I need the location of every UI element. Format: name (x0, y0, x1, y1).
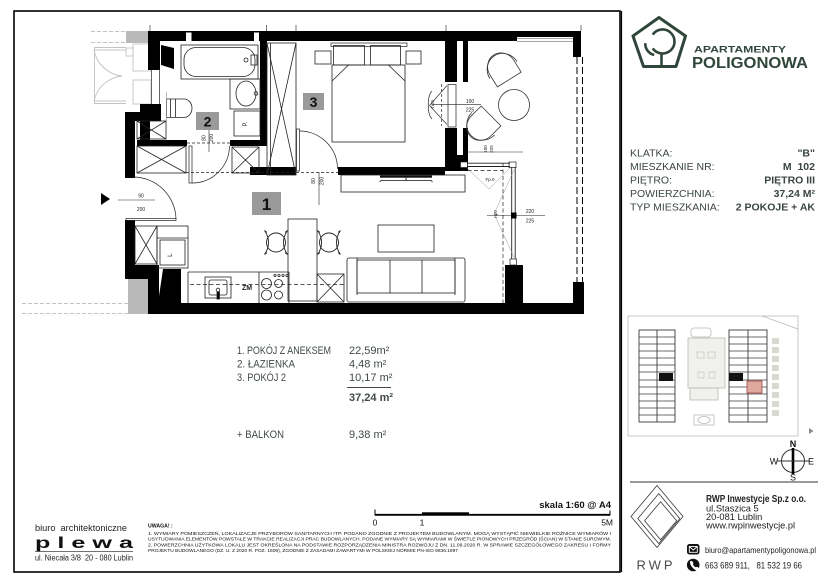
svg-text:2. ŁAZIENKA: 2. ŁAZIENKA (237, 359, 296, 371)
svg-text:5M: 5M (601, 518, 613, 528)
svg-text:10,17 m²: 10,17 m² (349, 372, 393, 384)
svg-text:225: 225 (489, 145, 494, 153)
svg-text:www.rwpinwestycje.pl: www.rwpinwestycje.pl (705, 521, 795, 531)
svg-text:PIĘTRO III: PIĘTRO III (764, 175, 815, 187)
svg-text:1. POKÓJ Z ANEKSEM: 1. POKÓJ Z ANEKSEM (237, 344, 331, 357)
svg-text:ul. Niecała 3/8 20 - 080 Lubl: ul. Niecała 3/8 20 - 080 Lublin (35, 554, 133, 563)
svg-text:biuro@apartamentypoligonowa.pl: biuro@apartamentypoligonowa.pl (705, 545, 816, 555)
svg-text:PIĘTRO:: PIĘTRO: (630, 175, 672, 187)
svg-text:2: 2 (204, 114, 212, 130)
svg-text:37,24 M²: 37,24 M² (774, 188, 816, 200)
svg-text:POLIGONOWA: POLIGONOWA (692, 55, 808, 72)
svg-text:9,38 m²: 9,38 m² (349, 429, 387, 441)
svg-text:PROJEKTU BUDOWLANEGO (DZ. U. Z: PROJEKTU BUDOWLANEGO (DZ. U. Z 2020 R. P… (148, 548, 458, 553)
svg-text:225: 225 (526, 219, 535, 225)
svg-text:M 102: M 102 (783, 161, 815, 173)
svg-text:APARTAMENTY: APARTAMENTY (694, 45, 787, 56)
svg-text:+ BALKON: + BALKON (237, 429, 284, 441)
svg-text:p l e w a: p l e w a (35, 535, 133, 552)
svg-text:1: 1 (262, 195, 271, 214)
svg-text:200: 200 (320, 177, 326, 186)
svg-text:np0: np0 (493, 210, 498, 218)
svg-text:Fp.0: Fp.0 (485, 177, 495, 182)
svg-text:RWP: RWP (636, 558, 675, 573)
svg-text:663 689 911, 81 532 19 66: 663 689 911, 81 532 19 66 (705, 561, 802, 571)
svg-text:200: 200 (137, 207, 146, 213)
svg-text:2. POWIERZCHNIA UŻYTKOWA LOKAL: 2. POWIERZCHNIA UŻYTKOWA LOKALU JEST OKR… (148, 540, 612, 547)
svg-text:UWAGA! :: UWAGA! : (148, 524, 173, 530)
svg-text:225: 225 (466, 108, 475, 114)
svg-text:S: S (790, 473, 796, 483)
svg-text:80: 80 (202, 135, 208, 141)
svg-text:"B": "B" (797, 148, 815, 160)
svg-text:100: 100 (466, 99, 475, 105)
svg-text:biuro architektoniczne: biuro architektoniczne (35, 523, 127, 534)
svg-text:P.: P. (243, 121, 249, 126)
svg-text:KLATKA:: KLATKA: (630, 148, 672, 160)
svg-text:1: 1 (420, 518, 425, 528)
svg-text:220: 220 (526, 209, 535, 215)
svg-text:USYTUOWANIA ELEMENTÓW POWSTAŁE: USYTUOWANIA ELEMENTÓW POWSTAŁE W TRAKCIE… (148, 535, 611, 542)
svg-text:0: 0 (373, 518, 378, 528)
svg-text:22,59m²: 22,59m² (349, 345, 390, 357)
svg-text:3: 3 (310, 94, 318, 110)
svg-text:TYP MIESZKANIA:: TYP MIESZKANIA: (630, 202, 720, 214)
svg-text:skala 1:60 @ A4: skala 1:60 @ A4 (539, 500, 611, 511)
svg-text:1. WYMIARY POMIESZCZEŃ, LOKALI: 1. WYMIARY POMIESZCZEŃ, LOKALIZACJE PRZY… (148, 530, 611, 536)
svg-text:E: E (808, 457, 814, 467)
svg-text:MIESZKANIE NR:: MIESZKANIE NR: (630, 161, 715, 173)
svg-text:L: L (167, 253, 174, 257)
svg-text:37,24 m²: 37,24 m² (349, 392, 393, 404)
svg-text:90: 90 (138, 194, 144, 200)
svg-text:np0: np0 (430, 100, 435, 108)
svg-text:2 POKOJE + AK: 2 POKOJE + AK (736, 202, 816, 214)
svg-text:W: W (770, 457, 779, 467)
svg-text:3. POKÓJ 2: 3. POKÓJ 2 (237, 371, 286, 384)
svg-text:80: 80 (311, 178, 317, 184)
svg-text:N: N (790, 439, 797, 449)
svg-text:100: 100 (483, 145, 488, 153)
svg-text:200: 200 (209, 134, 215, 143)
svg-text:POWIERZCHNIA:: POWIERZCHNIA: (630, 188, 715, 200)
svg-text:ZM: ZM (242, 285, 252, 292)
svg-text:4,48 m²: 4,48 m² (349, 359, 387, 371)
